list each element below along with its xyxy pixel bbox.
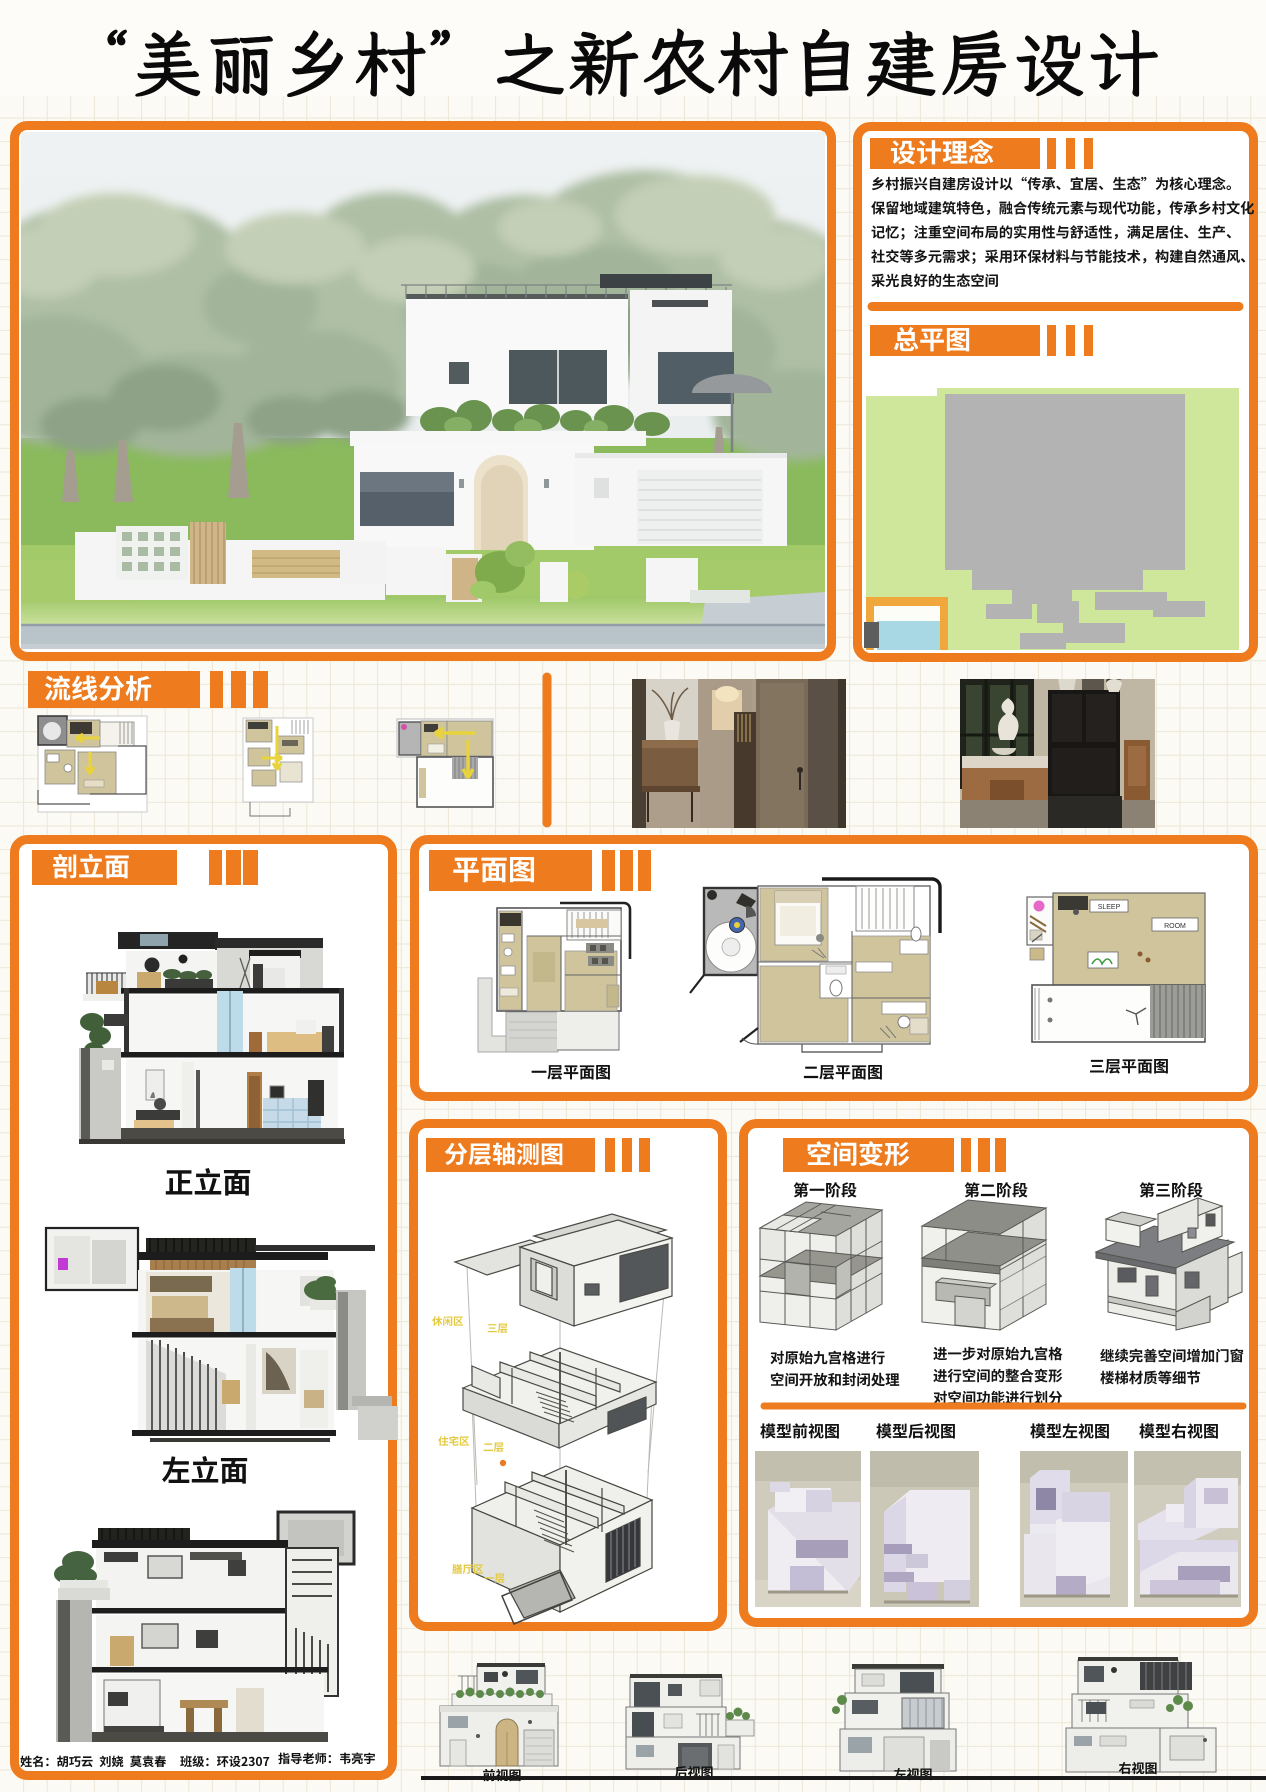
svg-text:ROOM: ROOM xyxy=(1164,923,1186,930)
svg-text:SLEEP: SLEEP xyxy=(1098,904,1121,911)
